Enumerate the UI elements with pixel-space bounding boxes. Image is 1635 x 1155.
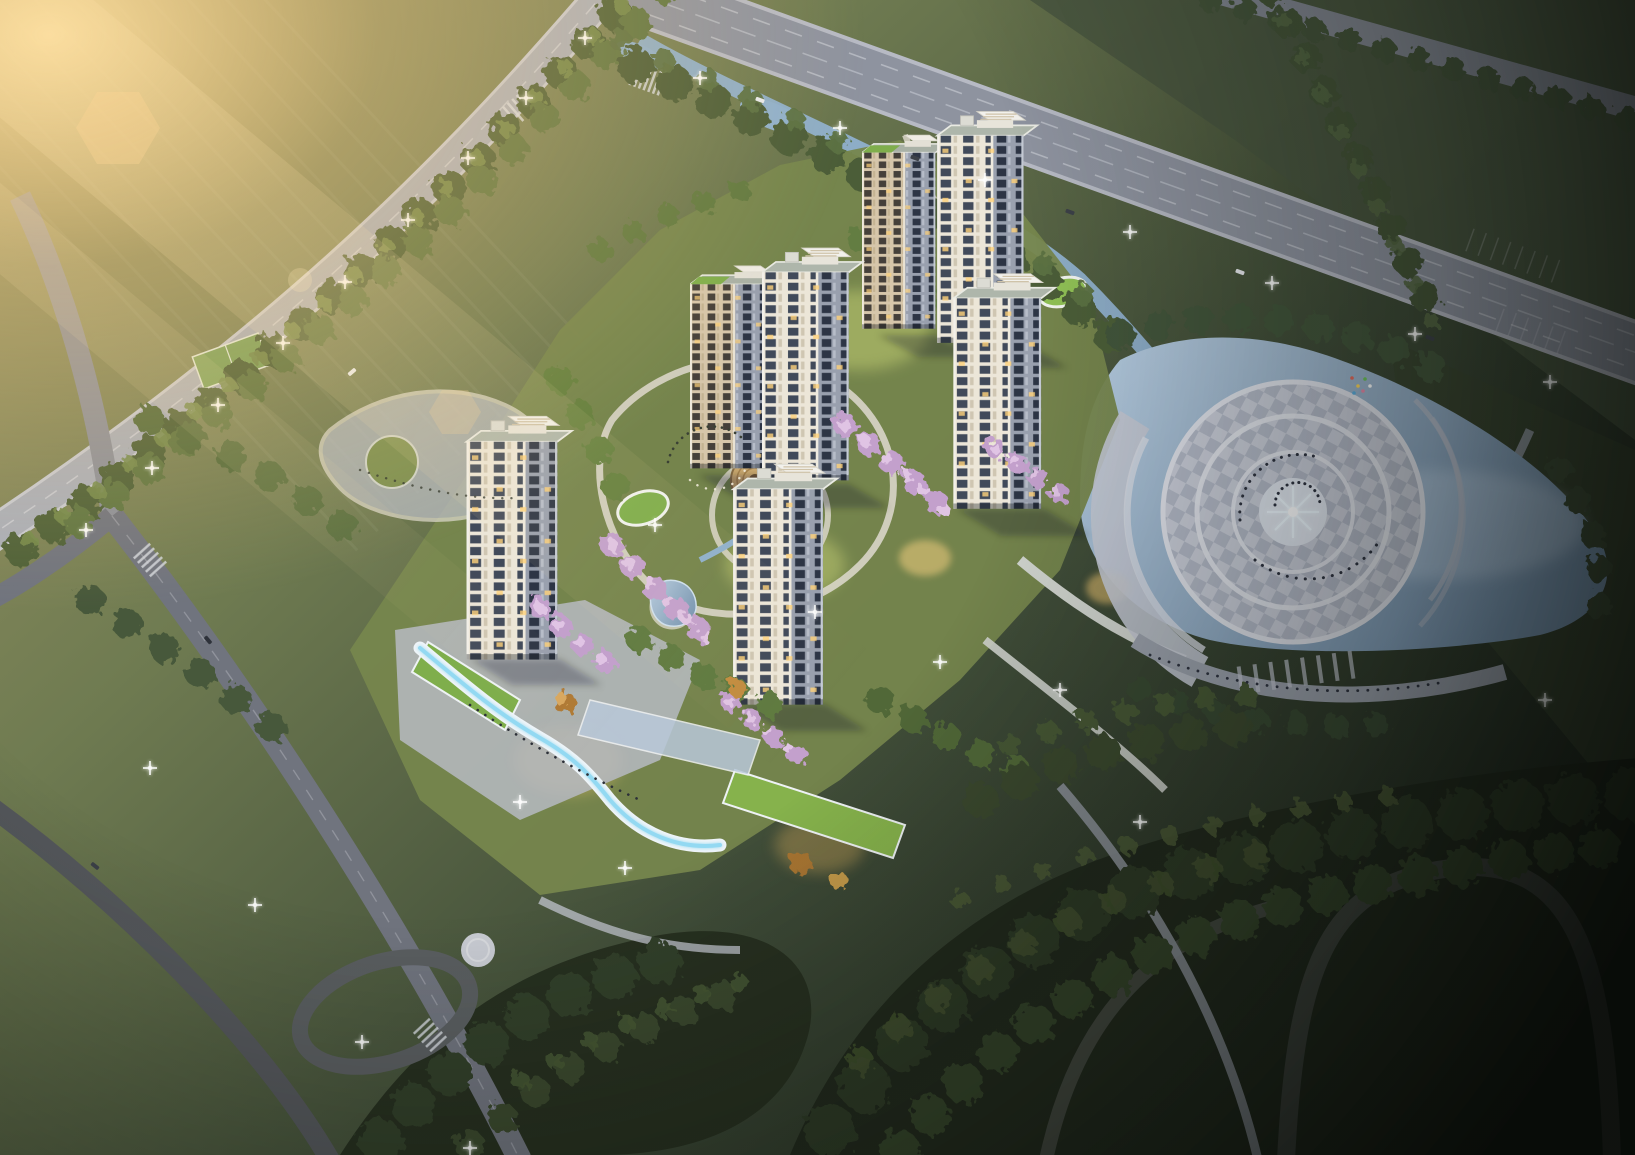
render-image: Dusk aerial rendering of a residential c… bbox=[0, 0, 1635, 1155]
sun-flare bbox=[0, 0, 1635, 1155]
